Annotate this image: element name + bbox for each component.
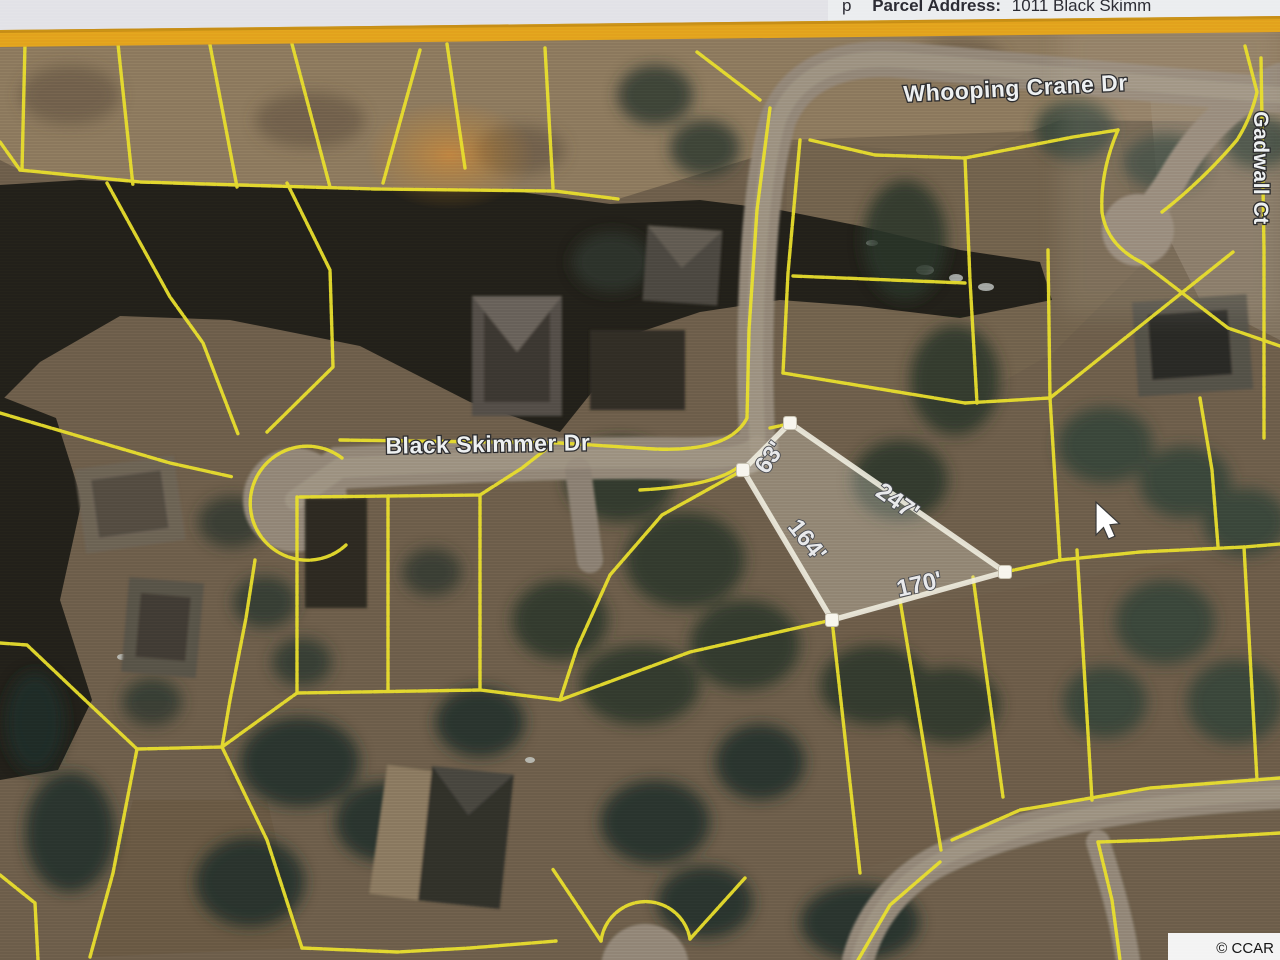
house [121,577,204,678]
driveway-stub [578,470,590,560]
house [472,296,562,416]
ccar-watermark: © CCAR [1216,940,1274,957]
parcel-address-label: Parcel Address: [872,0,1001,15]
house [369,765,514,909]
parcel-address-value: 1011 Black Skimm [1012,0,1152,15]
haze [1060,16,1280,316]
parcel-map-viewport[interactable]: p Parcel Address: 1011 Black Skimm [0,0,1280,960]
house [642,226,722,306]
header-text: p Parcel Address: 1011 Black Skimm [842,0,1151,15]
satellite-map[interactable]: 63' 247' 164' 170' Whooping Crane Dr Bla… [0,14,1280,960]
house [75,455,186,553]
watermark-chip: © CCAR [1168,933,1280,960]
street-label-black-skimmer: Black Skimmer Dr [385,429,590,459]
header-fragment-text: p [842,0,851,15]
screenshot-root: p Parcel Address: 1011 Black Skimm [0,0,1280,960]
street-label-gadwall: Gadwall Ct [1249,111,1272,225]
house [590,330,685,410]
